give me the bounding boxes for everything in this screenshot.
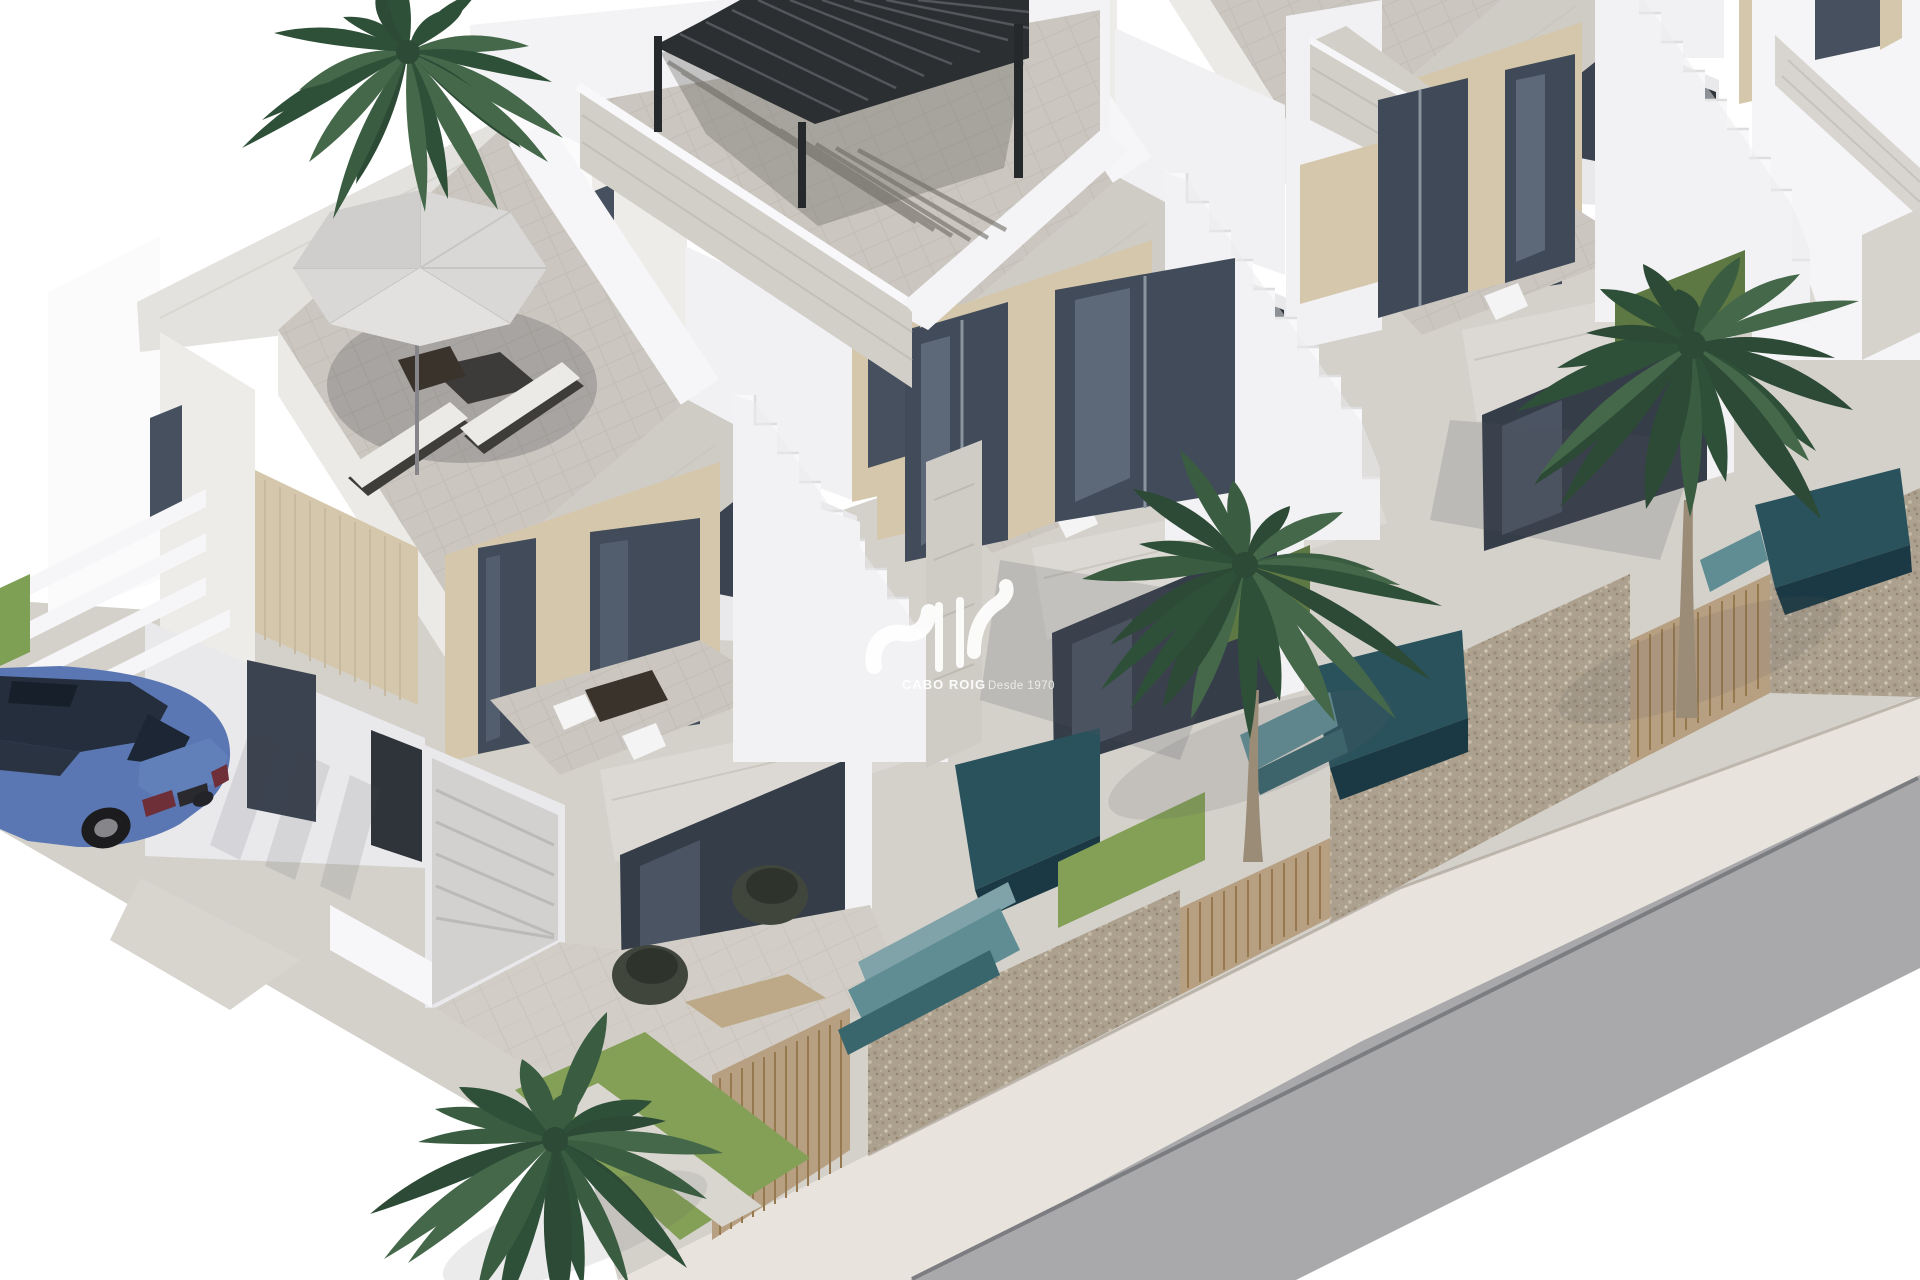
svg-text:Desde 1970: Desde 1970 — [988, 680, 1055, 692]
svg-text:CABO ROIG: CABO ROIG — [902, 677, 986, 692]
